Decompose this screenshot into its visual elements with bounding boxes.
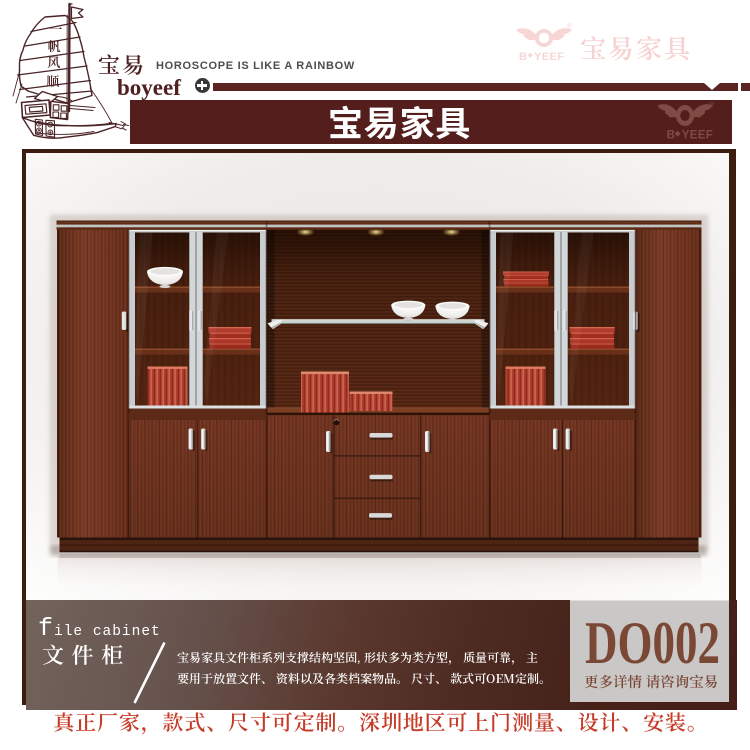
svg-text:YEEF: YEEF [534,51,564,63]
svg-text:顺: 顺 [46,71,59,90]
svg-text:B: B [667,130,676,142]
svg-text:B: B [519,51,527,63]
svg-text:®: ® [709,101,715,109]
svg-text:YEEF: YEEF [682,130,713,142]
svg-text:®: ® [567,22,572,30]
svg-text:风: 风 [47,52,60,71]
svg-text:宝易家具: 宝易家具 [580,29,692,64]
